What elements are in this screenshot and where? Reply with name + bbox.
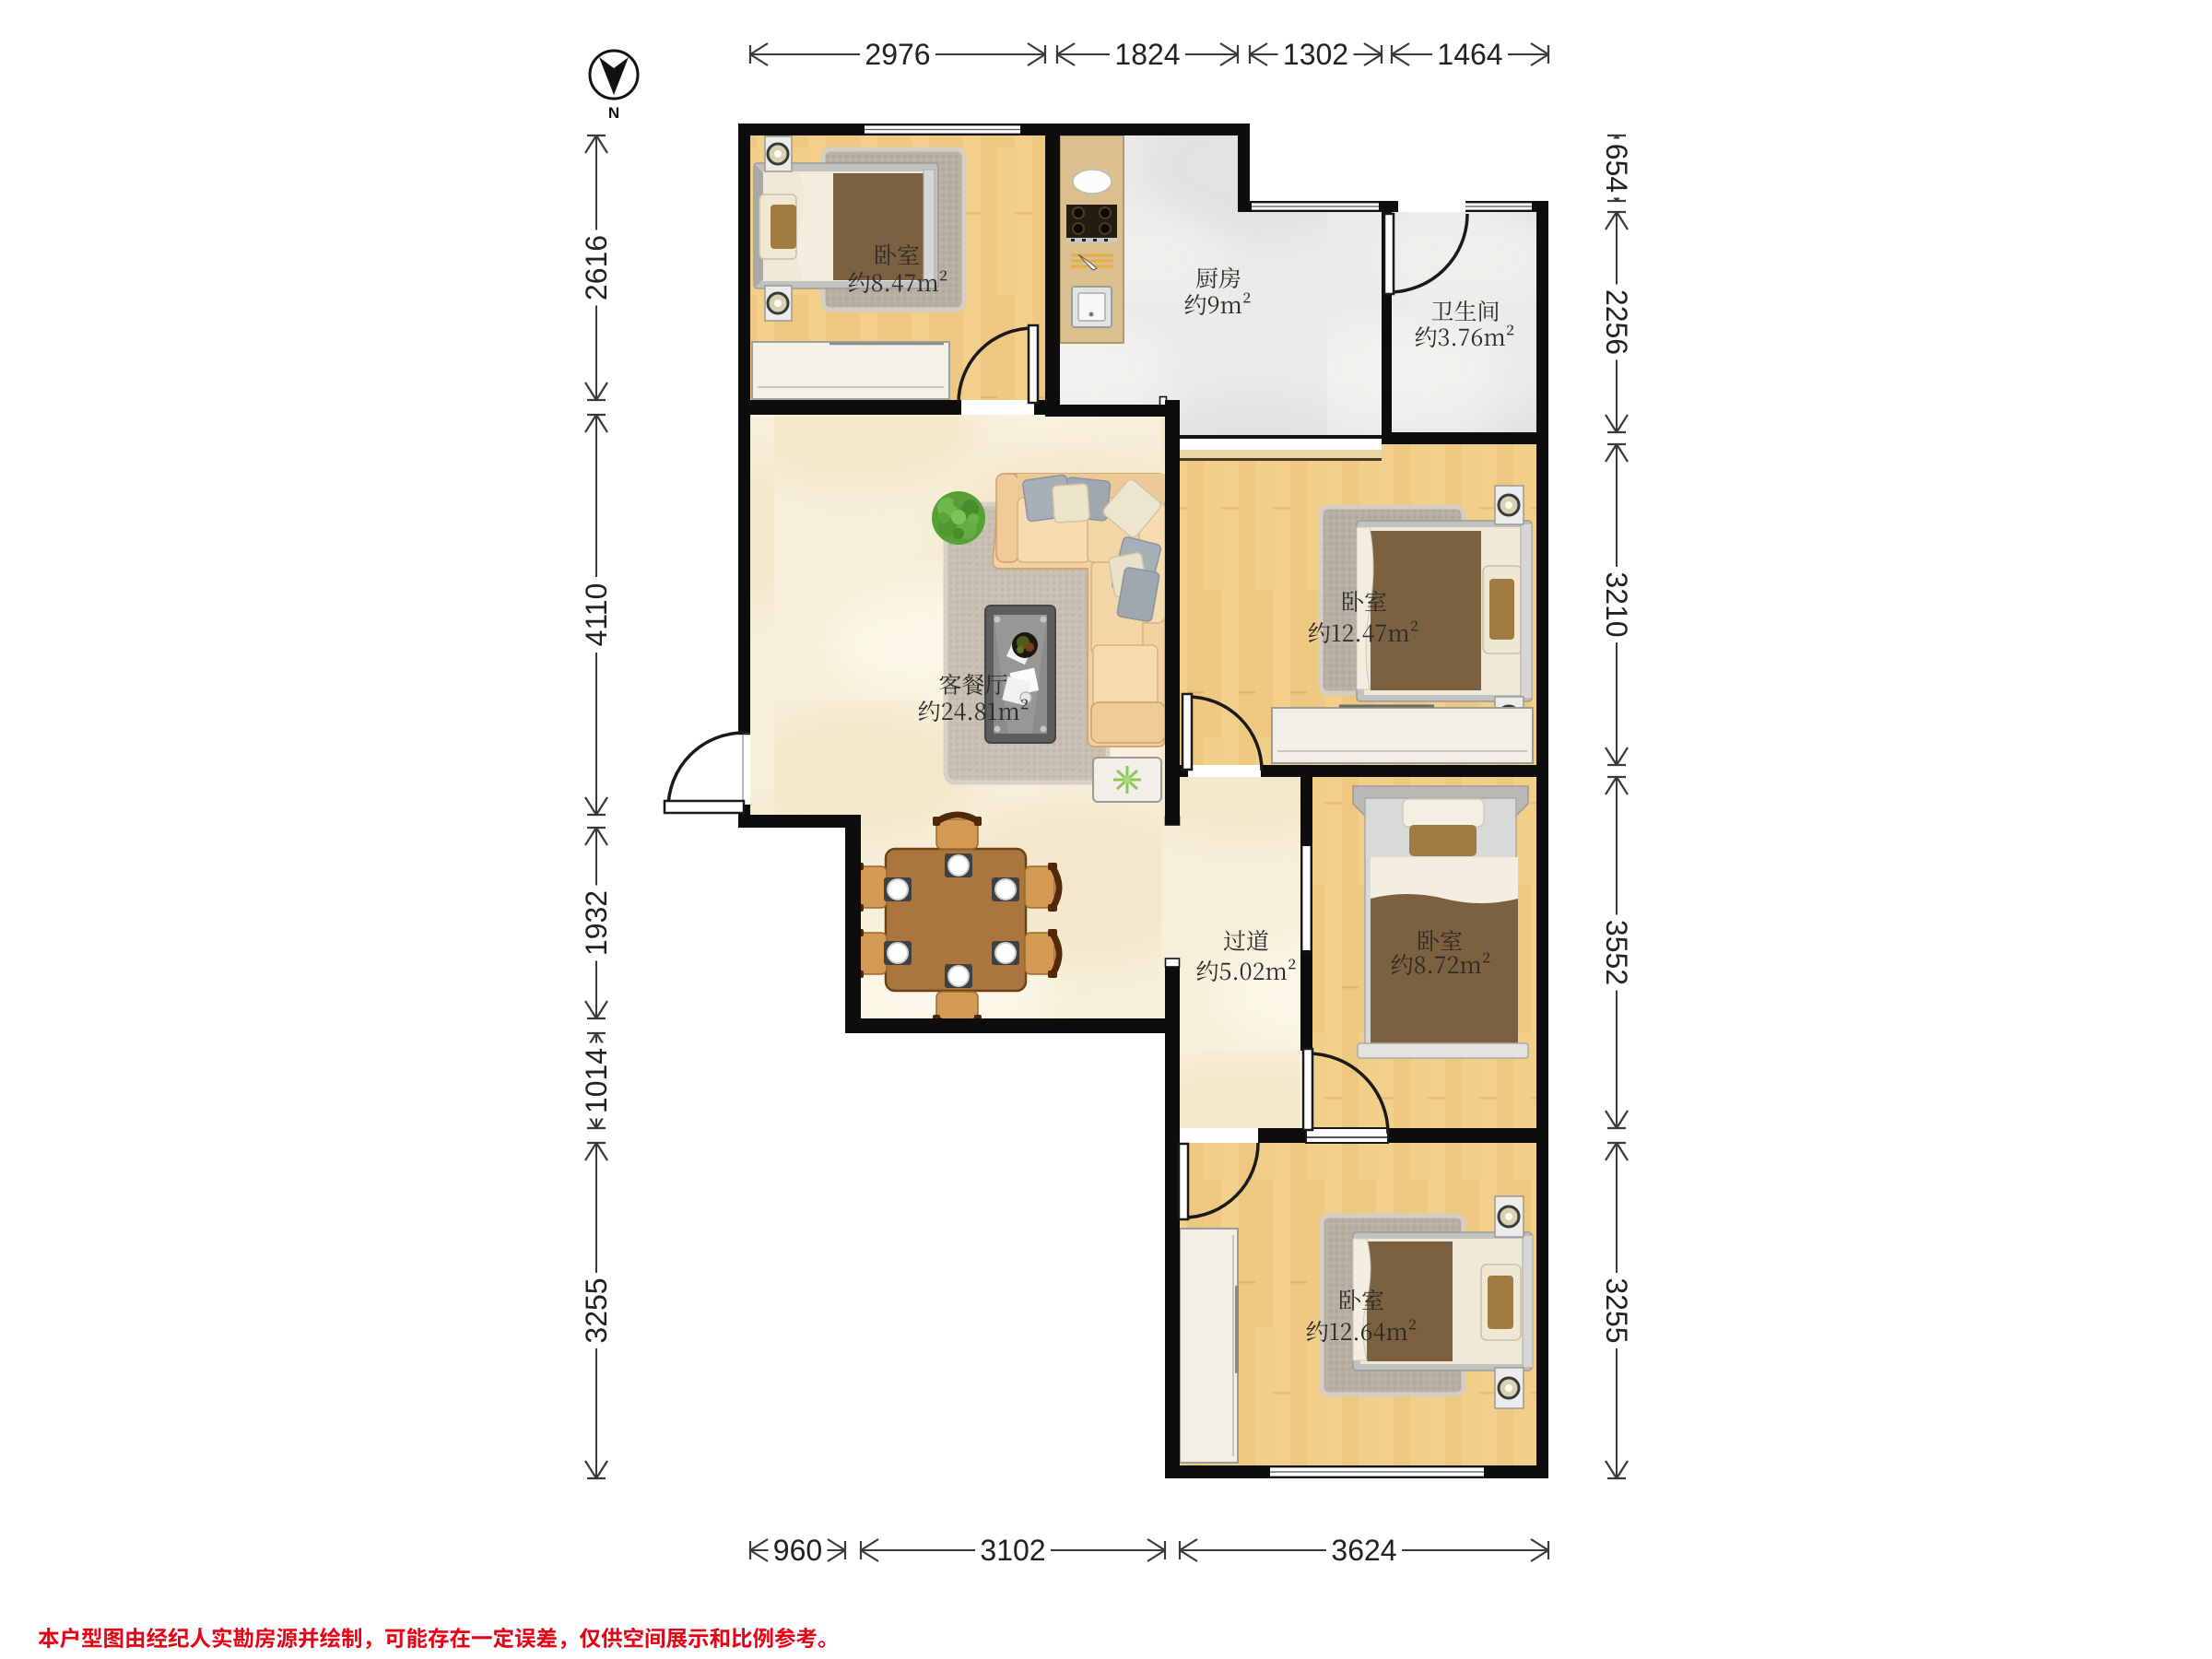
svg-text:1464: 1464 [1437,38,1502,71]
svg-text:3552: 3552 [1600,920,1633,985]
svg-text:2256: 2256 [1600,289,1633,355]
svg-text:1824: 1824 [1114,38,1180,71]
svg-text:4110: 4110 [580,583,613,647]
svg-text:654: 654 [1600,144,1633,193]
svg-text:3102: 3102 [980,1534,1045,1567]
svg-text:960: 960 [773,1534,822,1567]
svg-text:3624: 3624 [1331,1534,1396,1567]
svg-text:3255: 3255 [580,1277,613,1343]
svg-text:2976: 2976 [865,38,930,71]
svg-text:3255: 3255 [1600,1277,1633,1343]
svg-text:1932: 1932 [580,890,613,956]
svg-text:2616: 2616 [580,235,613,300]
svg-text:N: N [608,104,619,122]
svg-text:1014: 1014 [580,1048,613,1113]
svg-text:1302: 1302 [1283,38,1348,71]
svg-text:3210: 3210 [1600,571,1633,637]
